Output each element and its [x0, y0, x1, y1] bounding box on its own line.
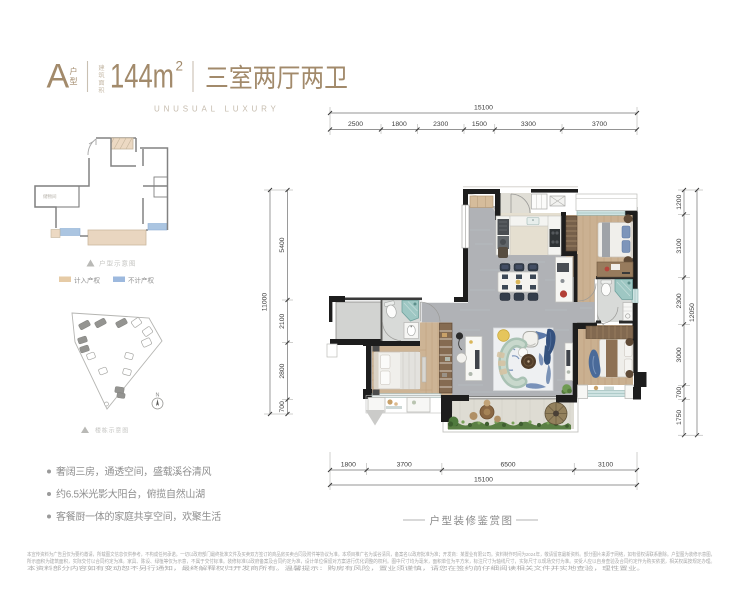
svg-text:1800: 1800 — [392, 121, 407, 128]
svg-text:2800: 2800 — [279, 363, 286, 378]
svg-text:12050: 12050 — [689, 303, 696, 322]
svg-text:2500: 2500 — [348, 121, 363, 128]
svg-text:户型示意图: 户型示意图 — [99, 259, 137, 268]
svg-text:3700: 3700 — [592, 121, 607, 128]
svg-text:奢阔三房，通透空间，盛载溪谷清风: 奢阔三房，通透空间，盛载溪谷清风 — [56, 465, 211, 478]
svg-text:700: 700 — [279, 401, 286, 413]
svg-text:楼栋示意图: 楼栋示意图 — [95, 427, 129, 435]
svg-text:N: N — [156, 393, 160, 399]
svg-text:3300: 3300 — [521, 121, 536, 128]
svg-text:3000: 3000 — [676, 347, 683, 362]
svg-text:15100: 15100 — [474, 477, 493, 484]
svg-text:客餐厨一体的家庭共享空间，欢聚生活: 客餐厨一体的家庭共享空间，欢聚生活 — [56, 510, 221, 523]
svg-text:11000: 11000 — [262, 293, 269, 312]
svg-text:A: A — [47, 58, 70, 96]
svg-text:本宣传资料为广告且仅为要约邀请，所载图文信息仅供参考，不构成: 本宣传资料为广告且仅为要约邀请，所载图文信息仅供参考，不构成任何承诺。一切以政府… — [27, 551, 715, 558]
svg-text:144m: 144m — [110, 58, 174, 96]
svg-text:700: 700 — [676, 387, 683, 399]
svg-text:3100: 3100 — [676, 238, 683, 253]
svg-text:三室两厅两卫: 三室两厅两卫 — [205, 63, 348, 93]
svg-text:UNUSUAL LUXURY: UNUSUAL LUXURY — [154, 105, 280, 114]
svg-text:1750: 1750 — [676, 410, 683, 425]
svg-text:计入产权: 计入产权 — [74, 276, 101, 285]
svg-text:5400: 5400 — [279, 237, 286, 252]
svg-text:1800: 1800 — [341, 462, 356, 469]
svg-text:筑: 筑 — [98, 72, 105, 80]
svg-text:1200: 1200 — [676, 194, 683, 209]
svg-text:建: 建 — [98, 64, 104, 72]
svg-text:3700: 3700 — [397, 462, 412, 469]
svg-text:2300: 2300 — [433, 121, 448, 128]
svg-text:型: 型 — [70, 77, 78, 86]
svg-text:2100: 2100 — [279, 314, 286, 329]
svg-text:2: 2 — [176, 59, 184, 74]
svg-text:面: 面 — [98, 80, 104, 87]
svg-text:3100: 3100 — [598, 462, 613, 469]
svg-text:本资料部分内容如有变动恕不另行通知，最终解释权归开发商所有。: 本资料部分内容如有变动恕不另行通知，最终解释权归开发商所有。温馨提示：购房有风险… — [27, 565, 645, 572]
svg-text:积: 积 — [98, 87, 104, 95]
svg-text:不计产权: 不计产权 — [128, 276, 155, 285]
svg-text:6500: 6500 — [500, 462, 515, 469]
svg-text:1500: 1500 — [472, 121, 487, 128]
svg-text:约6.5米光影大阳台，俯揽自然山湖: 约6.5米光影大阳台，俯揽自然山湖 — [56, 488, 205, 501]
svg-text:所示面积为建筑面积，实际交付以合同约定为准。家具、陈设、绿植: 所示面积为建筑面积，实际交付以合同约定为准。家具、陈设、绿植等仅为示意，不属于交… — [27, 558, 715, 565]
svg-text:户: 户 — [70, 66, 78, 76]
svg-text:储物间: 储物间 — [43, 193, 57, 200]
svg-text:15100: 15100 — [474, 105, 493, 112]
svg-text:2300: 2300 — [676, 293, 683, 308]
svg-text:户型装修鉴赏图: 户型装修鉴赏图 — [430, 514, 514, 527]
